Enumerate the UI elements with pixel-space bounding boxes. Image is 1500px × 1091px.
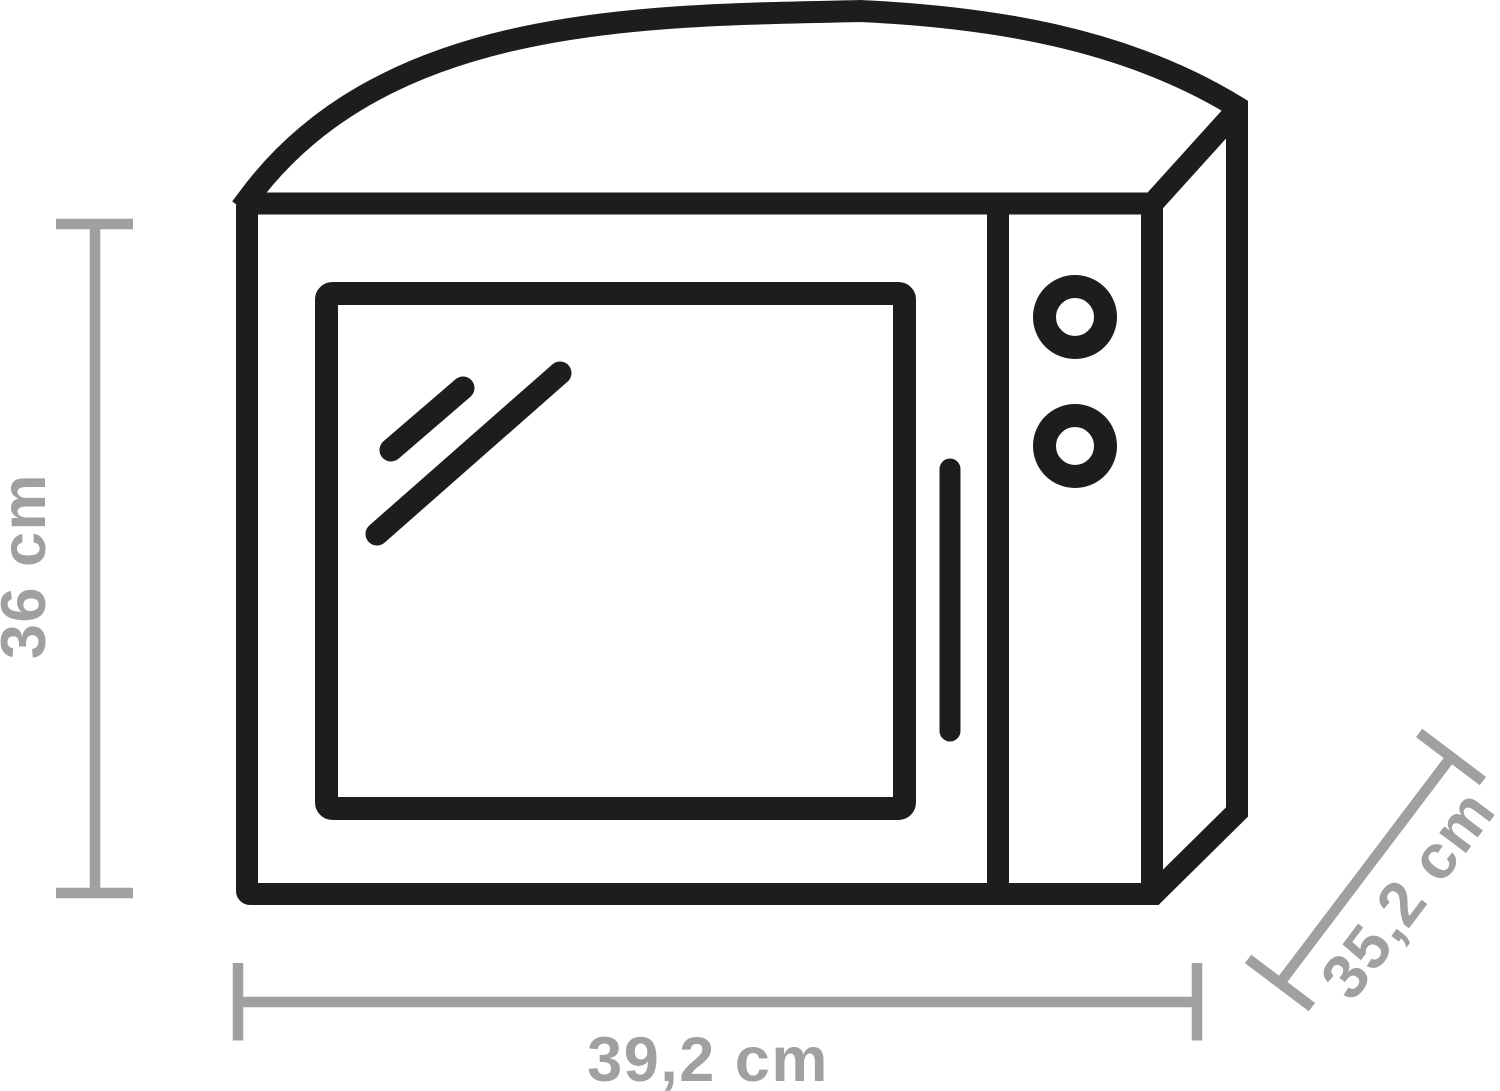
svg-text:39,2 cm: 39,2 cm xyxy=(587,1025,829,1091)
svg-text:36 cm: 36 cm xyxy=(0,473,59,659)
